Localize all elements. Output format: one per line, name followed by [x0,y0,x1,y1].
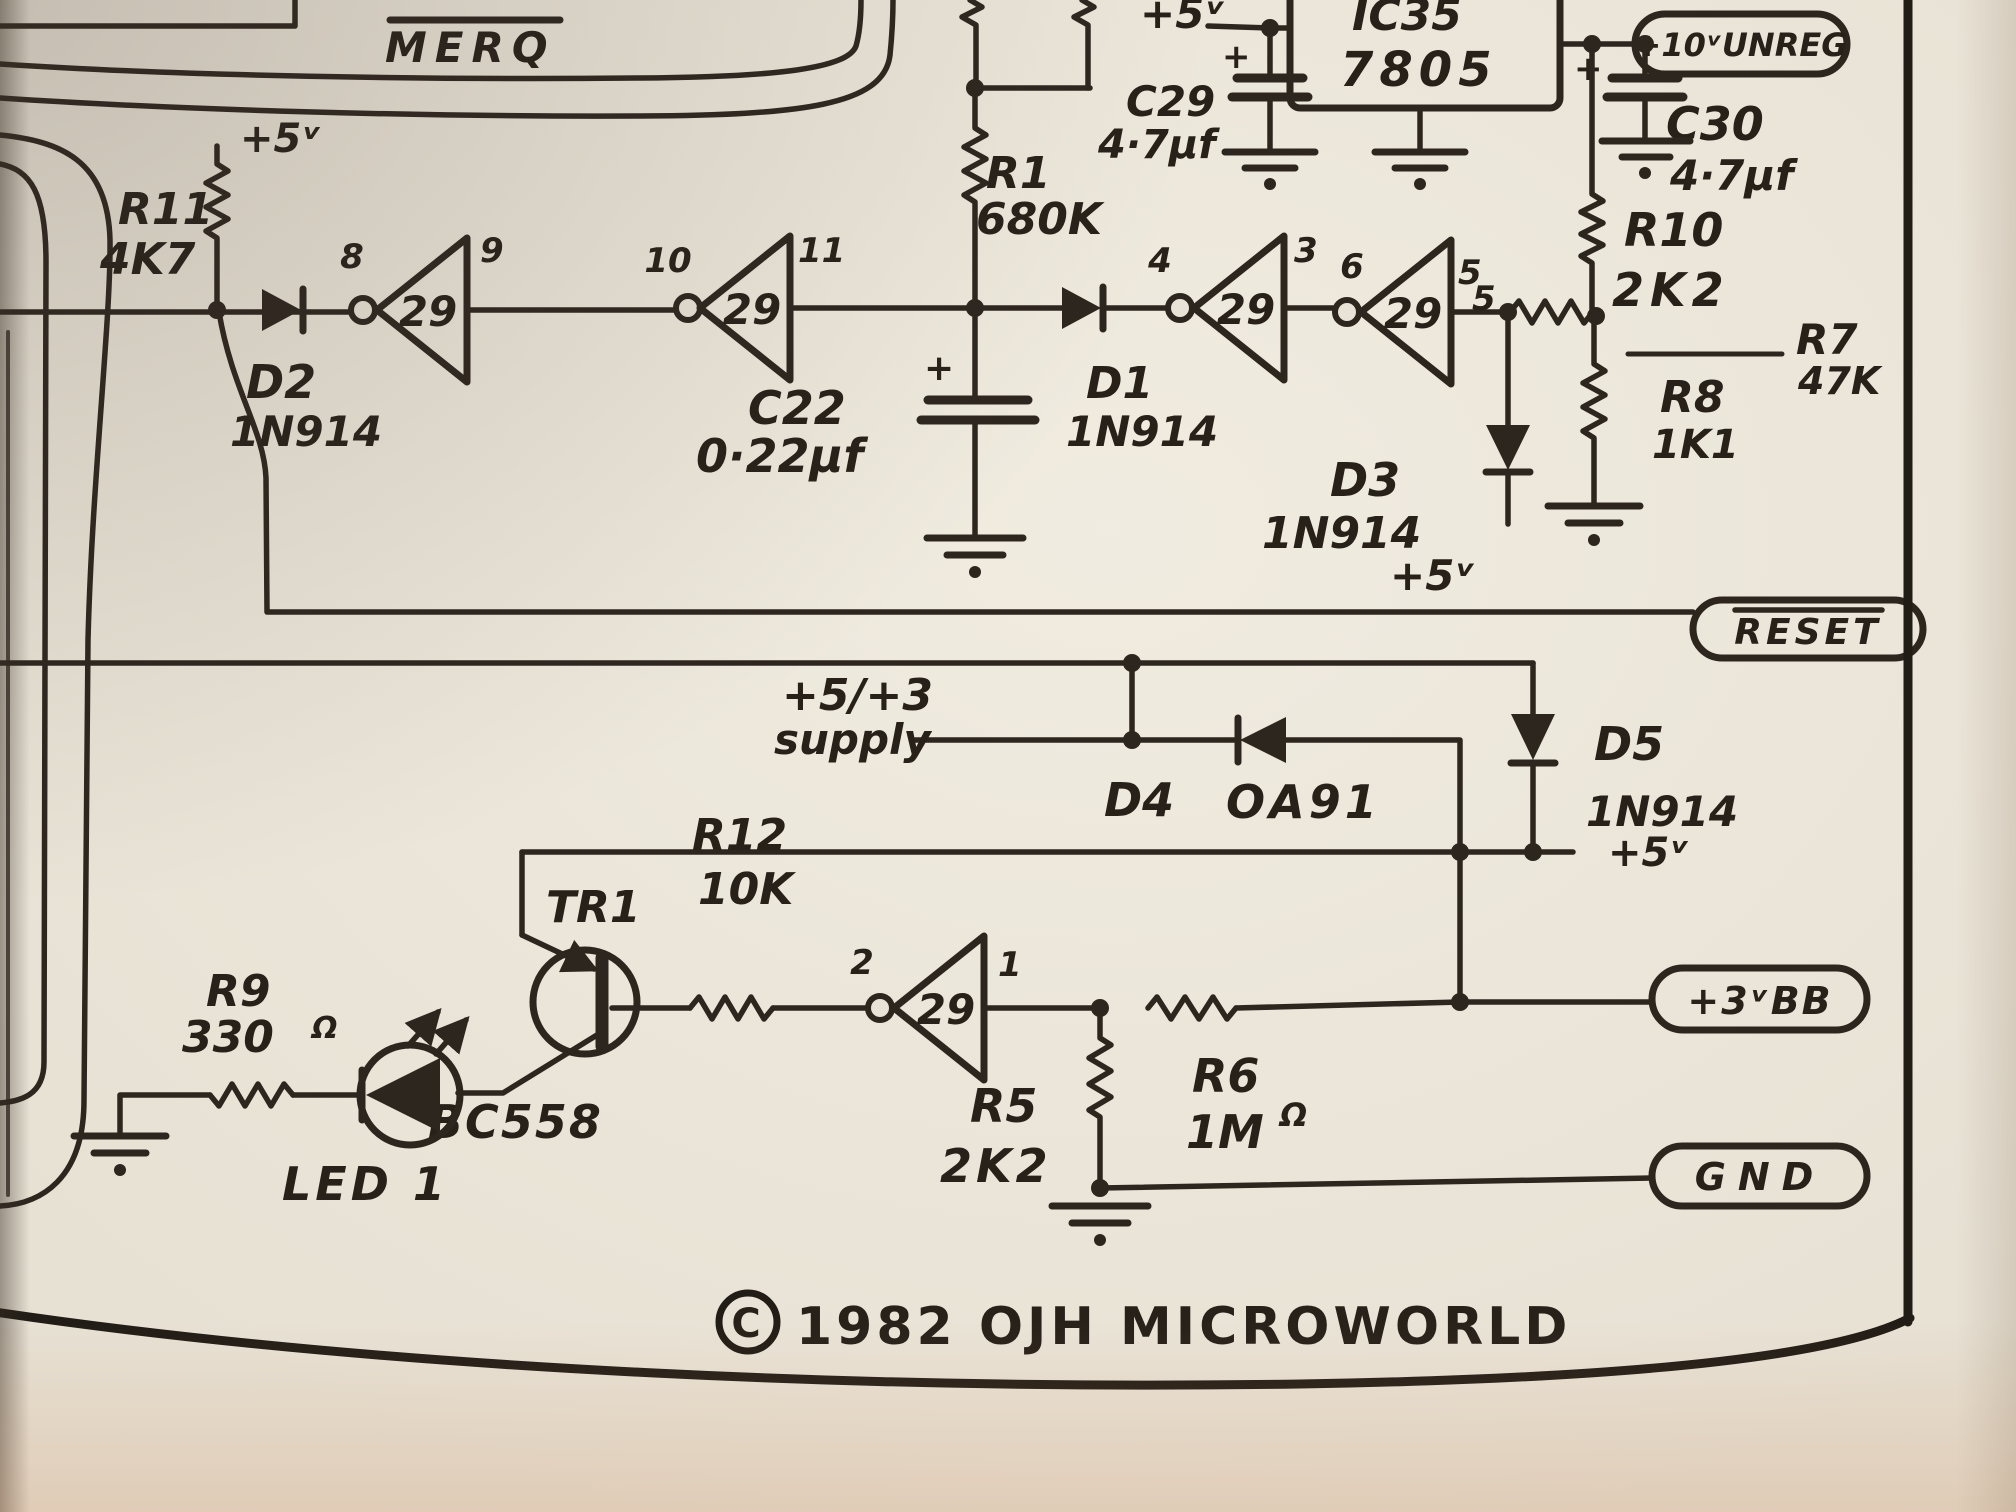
ground-dot [969,566,981,578]
copyright: C 1982 OJH MICROWORLD [719,1293,1571,1357]
r11-name: R11 [118,184,213,235]
merq-label: MERQ [385,23,556,72]
c29-plus: + [1222,37,1251,77]
reset-label: RESET [1734,612,1881,653]
tr1-name: TR1 [546,882,641,933]
d4-part: OA91 [1226,775,1381,829]
ground-dot [1639,167,1651,179]
unreg-label: +10ᵛUNREG [1635,26,1848,64]
supply-label-2: supply [774,715,932,764]
r9-unit: Ω [310,1011,338,1046]
gate-3-label: 29 [1217,285,1275,334]
r6-name: R6 [1192,1049,1259,1103]
gnd-label: GND [1695,1155,1826,1199]
c22-name: C22 [748,381,846,435]
r7-name: R7 [1796,315,1858,364]
r6-unit: Ω [1278,1096,1307,1134]
r5-name: R5 [970,1079,1037,1133]
gate-4-pin-out-alt: 5 [1472,279,1496,319]
ground-dot [114,1164,126,1176]
gate-5-bubble [868,996,892,1020]
r11-value: 4K7 [99,234,196,285]
ground-dot [1264,178,1276,190]
r1-value: 680K [976,194,1105,245]
gate-3-pin-out: 3 [1294,231,1318,271]
copyright-symbol: C [731,1301,764,1347]
d4-name: D4 [1104,773,1174,827]
gate-5-pin-in: 2 [850,943,874,983]
gate-2-pin-in: 10 [644,241,691,281]
d1-part: 1N914 [1066,407,1218,456]
r8-name: R8 [1660,372,1725,423]
d2-part: 1N914 [230,407,382,456]
net-label-merq: MERQ [385,20,560,72]
top-plus5-label: +5ᵛ [1140,0,1225,38]
gate-4-bubble [1335,300,1359,324]
ground-dot [1094,1234,1106,1246]
r11-plus5-label: +5ᵛ [240,116,321,162]
d5-name: D5 [1594,717,1664,771]
c22-plus: + [924,348,954,389]
ground-dot [1414,178,1426,190]
c29-name: C29 [1126,77,1215,126]
c30-value: 4·7µf [1669,151,1798,200]
r9-name: R9 [206,966,271,1017]
r5-value: 2K2 [940,1139,1052,1193]
d3-name: D3 [1330,453,1400,507]
gate-4-label: 29 [1384,289,1442,338]
d2-name: D2 [246,355,316,409]
r8-value: 1K1 [1652,422,1739,468]
d3-plus5-label: +5ᵛ [1390,551,1475,600]
r12-value: 10K [698,864,796,915]
gate-3-pin-in: 4 [1147,241,1172,281]
r9-value: 330 [182,1012,274,1063]
gate-1-label: 29 [399,287,457,336]
r10-name: R10 [1624,203,1723,257]
gate-4-pin-in: 6 [1340,247,1364,287]
d1-name: D1 [1086,358,1153,409]
gate-2-bubble [676,296,700,320]
r10-value: 2K2 [1612,263,1730,317]
gate-5-pin-out: 1 [998,945,1022,985]
gate-2-pin-out: 11 [798,231,845,271]
ground-dot [1588,534,1600,546]
r7-value: 47K [1797,359,1883,403]
r6-value: 1M [1186,1105,1264,1159]
gate-3-bubble [1168,296,1192,320]
d5-part: 1N914 [1586,787,1738,836]
c30-plus: + [1574,49,1603,89]
ic-name: IC35 [1352,0,1462,41]
gate-2-label: 29 [723,285,781,334]
bb-label: +3ᵛBB [1687,979,1832,1023]
c29-value: 4·7µf [1097,122,1220,168]
c22-value: 0·22µf [696,429,868,483]
supply-label-1: +5/+3 [782,670,933,721]
gate-5-label: 29 [917,985,975,1034]
gate-1-pin-out: 9 [480,231,504,271]
d5-plus5-label: +5ᵛ [1608,830,1689,876]
copyright-text: 1982 OJH MICROWORLD [796,1297,1571,1357]
r12-name: R12 [692,810,787,861]
r1-name: R1 [986,148,1051,199]
schematic-canvas: MERQ +5ᵛ R11 4K7 D2 1N914 29 8 9 29 10 1… [0,0,2016,1512]
schematic-photo: MERQ +5ᵛ R11 4K7 D2 1N914 29 8 9 29 10 1… [0,0,2016,1512]
gate-1-pin-in: 8 [340,237,364,277]
gate-1-bubble [351,298,375,322]
led1-label: LED 1 [282,1157,449,1211]
ic-part: 7805 [1340,42,1498,98]
